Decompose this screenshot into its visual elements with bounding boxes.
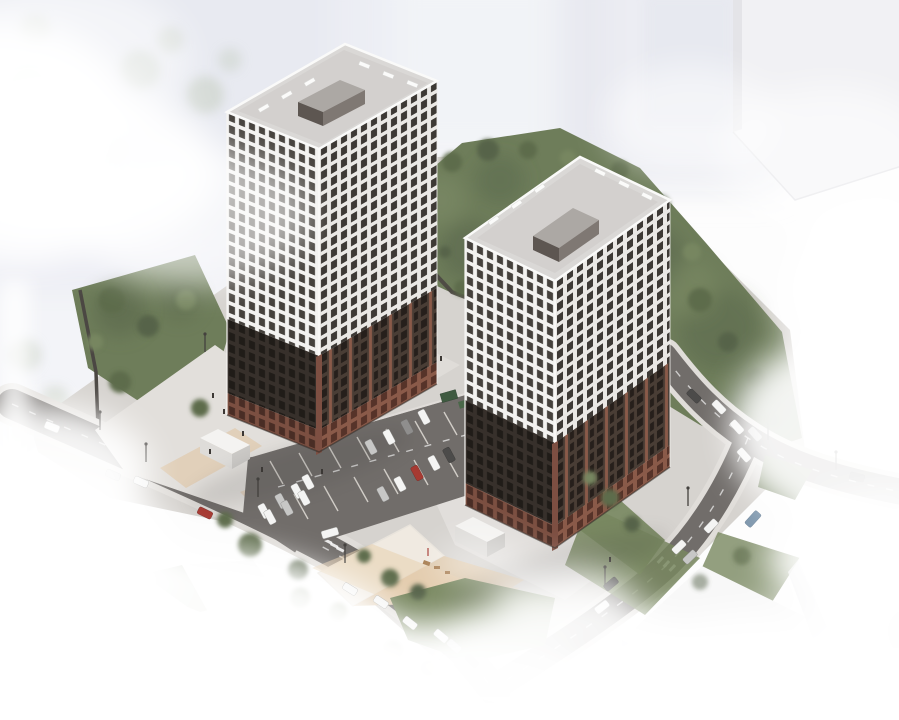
fog-cloud <box>605 65 775 175</box>
tree <box>99 287 125 313</box>
fog-bottom-edge <box>0 695 899 720</box>
tree <box>137 315 159 337</box>
tree <box>191 399 209 417</box>
tree <box>718 332 738 352</box>
tree <box>683 243 701 261</box>
person <box>242 431 244 436</box>
tree <box>692 574 708 590</box>
scene-canvas <box>0 0 899 720</box>
faded-tree <box>186 76 224 114</box>
architectural-render-image <box>0 0 899 720</box>
tree <box>601 489 619 507</box>
tree <box>439 246 451 258</box>
tree <box>217 512 233 528</box>
person <box>212 393 214 398</box>
tower-corner-brick <box>552 441 558 551</box>
tree <box>176 290 196 310</box>
fog-cloud <box>436 540 524 584</box>
tree <box>477 139 499 161</box>
fog-left-edge <box>0 280 30 540</box>
tree <box>357 549 371 563</box>
tree <box>688 288 712 312</box>
tree <box>624 516 640 532</box>
tree <box>410 584 426 600</box>
hill-shade <box>475 155 525 205</box>
tree <box>87 334 103 350</box>
fog-cloud <box>495 566 635 634</box>
tower-corner-brick <box>316 354 322 455</box>
tree <box>381 569 399 587</box>
person <box>223 409 225 414</box>
tree <box>519 141 537 159</box>
faded-tree <box>218 48 242 72</box>
tree <box>733 547 751 565</box>
person <box>440 356 442 361</box>
person <box>209 449 211 454</box>
tree <box>442 152 462 172</box>
tree <box>109 371 131 393</box>
tree <box>583 471 597 485</box>
